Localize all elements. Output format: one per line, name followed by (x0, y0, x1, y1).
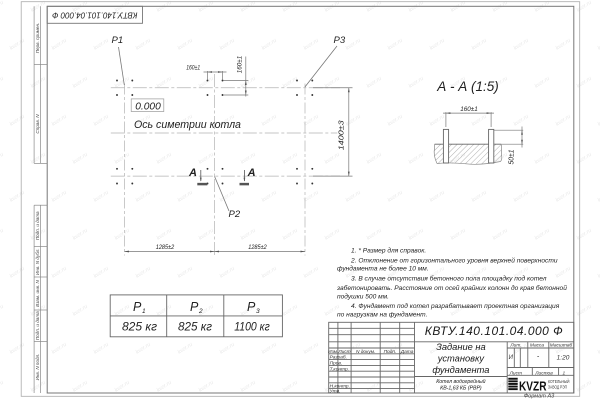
svg-text:kvzr.ru: kvzr.ru (114, 380, 131, 394)
svg-text:kvzr.ru: kvzr.ru (471, 38, 488, 52)
svg-text:Пров.: Пров. (330, 361, 343, 367)
svg-text:kvzr.ru: kvzr.ru (114, 228, 131, 242)
svg-text:Изм.: Изм. (328, 349, 338, 355)
svg-text:Лист: Лист (509, 370, 522, 376)
svg-text:kvzr.ru: kvzr.ru (51, 266, 68, 280)
svg-text:kvzr.ru: kvzr.ru (324, 152, 341, 166)
svg-text:kvzr.ru: kvzr.ru (156, 228, 173, 242)
svg-text:Дата: Дата (400, 349, 414, 355)
svg-text:kvzr.ru: kvzr.ru (576, 304, 593, 318)
svg-text:kvzr.ru: kvzr.ru (156, 152, 173, 166)
svg-text:kvzr.ru: kvzr.ru (366, 76, 383, 90)
svg-text:kvzr.ru: kvzr.ru (345, 190, 362, 204)
svg-text:Подп. и дата: Подп. и дата (35, 311, 40, 340)
svg-text:kvzr.ru: kvzr.ru (282, 304, 299, 318)
svg-text:kvzr.ru: kvzr.ru (9, 38, 26, 52)
svg-text:kvzr.ru: kvzr.ru (93, 266, 110, 280)
svg-text:kvzr.ru: kvzr.ru (555, 38, 572, 52)
svg-text:kvzr.ru: kvzr.ru (135, 190, 152, 204)
svg-text:3: 3 (256, 308, 260, 315)
svg-text:Формат А3: Формат А3 (524, 394, 555, 400)
svg-text:kvzr.ru: kvzr.ru (261, 342, 278, 356)
svg-text:160±1: 160±1 (237, 56, 244, 73)
svg-text:0.000: 0.000 (135, 100, 161, 112)
svg-text:160±1: 160±1 (186, 65, 200, 72)
svg-text:kvzr.ru: kvzr.ru (576, 152, 593, 166)
svg-text:160±1: 160±1 (460, 106, 477, 113)
svg-text:kvzr.ru: kvzr.ru (93, 190, 110, 204)
svg-text:фундамента не более 10 мм.: фундамента не более 10 мм. (337, 264, 429, 272)
svg-text:Взам. инв. N: Взам. инв. N (35, 279, 40, 306)
svg-text:2. Отклонение от горизонтальн: 2. Отклонение от горизонтального уровня … (350, 256, 558, 264)
svg-text:P2: P2 (229, 209, 241, 220)
svg-text:kvzr.ru: kvzr.ru (135, 266, 152, 280)
svg-text:КВТУ.140.101.04.000 Ф: КВТУ.140.101.04.000 Ф (425, 324, 563, 338)
svg-text:kvzr.ru: kvzr.ru (534, 228, 551, 242)
svg-text:kvzr.ru: kvzr.ru (303, 342, 320, 356)
svg-text:kvzr.ru: kvzr.ru (429, 38, 446, 52)
svg-text:kvzr.ru: kvzr.ru (303, 190, 320, 204)
svg-text:kvzr.ru: kvzr.ru (219, 38, 236, 52)
svg-text:Разраб.: Разраб. (330, 355, 347, 361)
svg-text:kvzr.ru: kvzr.ru (282, 380, 299, 394)
svg-text:Инв. N подл.: Инв. N подл. (35, 354, 40, 381)
svg-text:N докум.: N докум. (356, 349, 375, 355)
svg-text:1: 1 (142, 308, 146, 315)
svg-text:kvzr.ru: kvzr.ru (114, 152, 131, 166)
svg-text:P: P (247, 300, 256, 314)
svg-text:3. В случае отсутствия бетонн: 3. В случае отсутствия бетонного пола пл… (351, 274, 547, 282)
svg-text:И: И (509, 355, 514, 361)
svg-text:1285±2: 1285±2 (248, 244, 267, 251)
svg-text:kvzr.ru: kvzr.ru (513, 190, 530, 204)
svg-text:kvzr.ru: kvzr.ru (198, 152, 215, 166)
svg-text:Масса: Масса (530, 342, 545, 348)
svg-text:КВТУ.140.101.04.000 Ф: КВТУ.140.101.04.000 Ф (52, 11, 138, 20)
svg-text:Листов: Листов (534, 370, 553, 376)
svg-text:kvzr.ru: kvzr.ru (303, 38, 320, 52)
svg-text:1400±3: 1400±3 (337, 119, 346, 150)
svg-text:A: A (247, 167, 256, 179)
svg-text:A: A (188, 167, 197, 179)
svg-text:kvzr.ru: kvzr.ru (408, 228, 425, 242)
svg-text:kvzr.ru: kvzr.ru (555, 114, 572, 128)
svg-text:kvzr.ru: kvzr.ru (198, 228, 215, 242)
svg-text:kvzr.ru: kvzr.ru (0, 152, 5, 166)
svg-text:kvzr.ru: kvzr.ru (261, 190, 278, 204)
svg-text:kvzr.ru: kvzr.ru (72, 152, 89, 166)
svg-text:kvzr.ru: kvzr.ru (135, 342, 152, 356)
svg-text:по нагрузкам на фундамент.: по нагрузкам на фундамент. (337, 310, 428, 318)
svg-text:установку: установку (437, 353, 486, 363)
svg-text:1:20: 1:20 (557, 354, 570, 361)
svg-text:kvzr.ru: kvzr.ru (471, 114, 488, 128)
svg-text:kvzr.ru: kvzr.ru (345, 114, 362, 128)
svg-text:kvzr.ru: kvzr.ru (177, 266, 194, 280)
svg-text:kvzr.ru: kvzr.ru (366, 152, 383, 166)
svg-text:КОТЕЛЬНЫЙ: КОТЕЛЬНЫЙ (548, 379, 570, 384)
svg-text:kvzr.ru: kvzr.ru (30, 380, 47, 394)
svg-text:1100 кг: 1100 кг (234, 321, 270, 333)
svg-text:1. * Размер для справок.: 1. * Размер для справок. (351, 246, 426, 254)
svg-text:kvzr.ru: kvzr.ru (177, 38, 194, 52)
svg-text:kvzr.ru: kvzr.ru (282, 228, 299, 242)
svg-text:kvzr.ru: kvzr.ru (9, 114, 26, 128)
svg-text:kvzr.ru: kvzr.ru (387, 38, 404, 52)
svg-text:kvzr.ru: kvzr.ru (135, 38, 152, 52)
svg-text:-: - (537, 354, 540, 361)
svg-text:kvzr.ru: kvzr.ru (408, 380, 425, 394)
svg-text:kvzr.ru: kvzr.ru (324, 228, 341, 242)
svg-text:kvzr.ru: kvzr.ru (387, 114, 404, 128)
svg-text:kvzr.ru: kvzr.ru (177, 190, 194, 204)
svg-text:1285±2: 1285±2 (156, 244, 175, 251)
svg-text:kvzr.ru: kvzr.ru (93, 342, 110, 356)
svg-text:kvzr.ru: kvzr.ru (72, 380, 89, 394)
svg-text:825 кг: 825 кг (178, 321, 212, 333)
svg-text:Справ. N: Справ. N (35, 114, 40, 134)
svg-text:kvzr.ru: kvzr.ru (51, 38, 68, 52)
svg-text:подушки 500 мм.: подушки 500 мм. (337, 292, 389, 300)
svg-text:kvzr.ru: kvzr.ru (30, 76, 47, 90)
svg-text:kvzr.ru: kvzr.ru (0, 304, 5, 318)
svg-text:KVZR: KVZR (519, 379, 547, 394)
svg-text:kvzr.ru: kvzr.ru (0, 380, 5, 394)
svg-text:kvzr.ru: kvzr.ru (9, 266, 26, 280)
svg-text:kvzr.ru: kvzr.ru (534, 76, 551, 90)
svg-text:kvzr.ru: kvzr.ru (492, 380, 509, 394)
svg-text:Лист: Лист (337, 349, 350, 355)
svg-text:kvzr.ru: kvzr.ru (366, 228, 383, 242)
svg-text:kvzr.ru: kvzr.ru (555, 190, 572, 204)
svg-text:P: P (190, 300, 199, 314)
svg-text:kvzr.ru: kvzr.ru (177, 342, 194, 356)
svg-text:kvzr.ru: kvzr.ru (9, 190, 26, 204)
svg-text:Инв. N дубл.: Инв. N дубл. (35, 248, 40, 275)
svg-text:P1: P1 (112, 35, 124, 46)
svg-text:Лит.: Лит. (509, 342, 521, 348)
svg-text:kvzr.ru: kvzr.ru (492, 228, 509, 242)
svg-text:kvzr.ru: kvzr.ru (156, 380, 173, 394)
svg-text:kvzr.ru: kvzr.ru (219, 342, 236, 356)
svg-text:kvzr.ru: kvzr.ru (261, 266, 278, 280)
svg-text:kvzr.ru: kvzr.ru (345, 38, 362, 52)
svg-text:kvzr.ru: kvzr.ru (0, 76, 5, 90)
svg-text:kvzr.ru: kvzr.ru (51, 114, 68, 128)
svg-text:4. Фундамент под котел разраб: 4. Фундамент под котел разрабатывает про… (351, 302, 560, 310)
svg-text:kvzr.ru: kvzr.ru (240, 380, 257, 394)
svg-text:kvzr.ru: kvzr.ru (576, 380, 593, 394)
svg-text:забетонировать. Расстояние от: забетонировать. Расстояние от осей крайн… (336, 284, 567, 292)
svg-text:kvzr.ru: kvzr.ru (555, 266, 572, 280)
svg-text:Котел водогрейный: Котел водогрейный (436, 378, 485, 385)
svg-text:kvzr.ru: kvzr.ru (72, 228, 89, 242)
svg-text:kvzr.ru: kvzr.ru (72, 304, 89, 318)
svg-text:kvzr.ru: kvzr.ru (303, 266, 320, 280)
svg-text:Перв. примен.: Перв. примен. (35, 23, 40, 54)
svg-text:kvzr.ru: kvzr.ru (51, 190, 68, 204)
svg-text:kvzr.ru: kvzr.ru (513, 114, 530, 128)
svg-text:А - А (1:5): А - А (1:5) (436, 79, 499, 94)
svg-text:Масштаб: Масштаб (550, 342, 573, 348)
svg-text:50±1: 50±1 (507, 149, 516, 164)
svg-text:kvzr.ru: kvzr.ru (303, 114, 320, 128)
svg-text:kvzr.ru: kvzr.ru (0, 228, 5, 242)
svg-text:kvzr.ru: kvzr.ru (93, 114, 110, 128)
svg-text:kvzr.ru: kvzr.ru (429, 114, 446, 128)
svg-text:Подп. и дата: Подп. и дата (35, 211, 40, 240)
svg-text:2: 2 (198, 308, 203, 315)
svg-text:kvzr.ru: kvzr.ru (240, 152, 257, 166)
svg-text:kvzr.ru: kvzr.ru (429, 190, 446, 204)
svg-text:kvzr.ru: kvzr.ru (387, 190, 404, 204)
svg-text:kvzr.ru: kvzr.ru (51, 342, 68, 356)
svg-text:kvzr.ru: kvzr.ru (450, 228, 467, 242)
svg-text:kvzr.ru: kvzr.ru (261, 38, 278, 52)
svg-text:Т.контр.: Т.контр. (330, 366, 349, 372)
svg-text:kvzr.ru: kvzr.ru (282, 152, 299, 166)
svg-text:kvzr.ru: kvzr.ru (534, 152, 551, 166)
svg-text:kvzr.ru: kvzr.ru (93, 38, 110, 52)
svg-text:kvzr.ru: kvzr.ru (198, 380, 215, 394)
svg-text:Подп.: Подп. (384, 349, 397, 355)
svg-text:kvzr.ru: kvzr.ru (9, 342, 26, 356)
svg-text:kvzr.ru: kvzr.ru (72, 76, 89, 90)
svg-text:фундамента: фундамента (432, 365, 489, 375)
svg-text:ЗАВОД РЭП: ЗАВОД РЭП (548, 384, 567, 389)
svg-text:Ось симетрии котла: Ось симетрии котла (134, 119, 241, 131)
svg-text:Утв.: Утв. (330, 389, 341, 395)
svg-text:kvzr.ru: kvzr.ru (408, 152, 425, 166)
svg-text:kvzr.ru: kvzr.ru (471, 190, 488, 204)
svg-text:kvzr.ru: kvzr.ru (576, 76, 593, 90)
svg-text:kvzr.ru: kvzr.ru (261, 114, 278, 128)
svg-text:kvzr.ru: kvzr.ru (576, 228, 593, 242)
svg-text:1: 1 (562, 370, 565, 376)
svg-text:kvzr.ru: kvzr.ru (408, 76, 425, 90)
svg-text:825 кг: 825 кг (122, 321, 157, 333)
svg-text:КВ-1,63 КБ (РВР): КВ-1,63 КБ (РВР) (440, 385, 482, 391)
svg-text:kvzr.ru: kvzr.ru (0, 0, 5, 14)
svg-text:P: P (133, 300, 142, 314)
svg-text:kvzr.ru: kvzr.ru (513, 38, 530, 52)
svg-text:P3: P3 (334, 35, 346, 46)
svg-text:kvzr.ru: kvzr.ru (219, 266, 236, 280)
svg-text:kvzr.ru: kvzr.ru (240, 228, 257, 242)
svg-text:Задание на: Задание на (436, 342, 486, 352)
